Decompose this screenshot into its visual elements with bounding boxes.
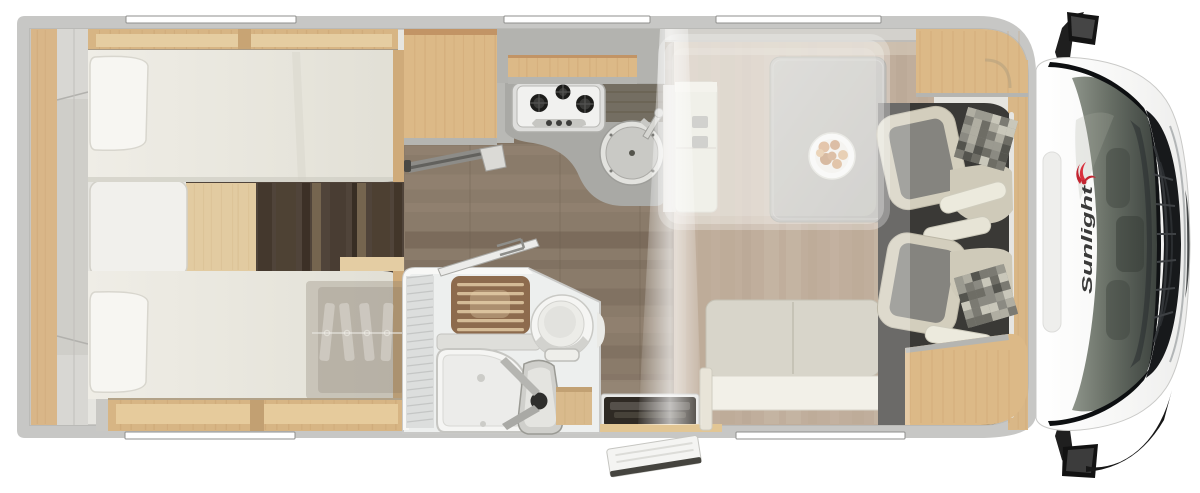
svg-text:Sunlight: Sunlight [1079,184,1096,294]
